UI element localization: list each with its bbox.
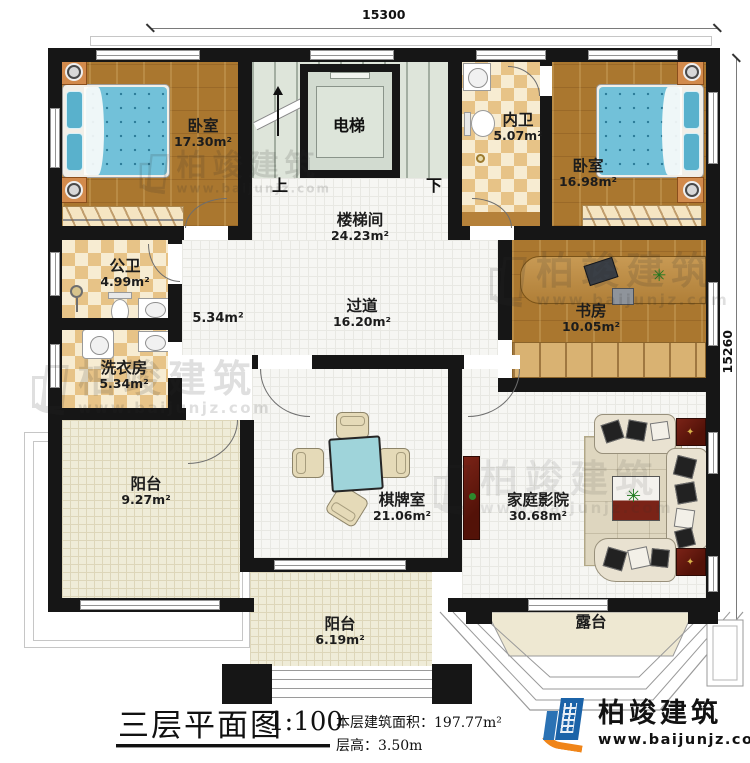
room-label-public-bath: 公卫 4.99m² [77, 258, 173, 289]
window [274, 560, 406, 570]
elevator-door-slot [330, 72, 370, 79]
window [50, 252, 60, 296]
dimension-right: 15260 [720, 330, 735, 374]
wall [48, 318, 182, 330]
door-opening [470, 226, 514, 240]
window [708, 556, 718, 592]
room-label-study: 书房 10.05m² [543, 303, 639, 334]
window [708, 92, 718, 164]
window [96, 50, 200, 60]
mahjong-table [328, 435, 384, 492]
side-table: ✦ [676, 418, 706, 446]
nightstand [60, 59, 87, 85]
balcony-railing [254, 666, 432, 698]
room-label-laundry: 洗衣房 5.34m² [76, 360, 172, 391]
washing-machine [82, 329, 114, 359]
bookshelf [512, 342, 706, 378]
stairs-down-label: 下 [426, 172, 442, 196]
door-opening [258, 355, 312, 369]
brand-website: www.baijunjz.com [598, 732, 750, 748]
hallway-area-label: 5.34m² [170, 312, 266, 327]
brand-logo: 柏竣建筑 www.baijunjz.com [540, 698, 750, 750]
floor-height-text: 层高：3.50m [336, 735, 422, 755]
window [588, 50, 678, 60]
door-opening [184, 226, 228, 240]
plant: ✳ [652, 266, 666, 286]
dimension-top: 15300 [362, 7, 406, 22]
room-label-home-theater: 家庭影院 30.68m² [490, 492, 586, 523]
wall [498, 378, 720, 392]
sofa [666, 448, 708, 550]
room-label-stair-hall: 楼梯间 24.23m² [312, 212, 408, 243]
floor-drain [476, 154, 485, 163]
wall [688, 598, 718, 624]
room-label-corridor: 过道 16.20m² [314, 298, 410, 329]
stair-direction-arrow [277, 92, 279, 136]
bed-sheet [662, 87, 682, 175]
dimension-line-right [736, 58, 737, 658]
stairs-up-label: 上 [272, 172, 288, 196]
top-sill-line [90, 36, 712, 46]
chair [292, 448, 324, 478]
room-label-terrace: 露台 [543, 614, 639, 631]
brand-logo-icon [540, 698, 592, 750]
dimension-line-top [150, 28, 718, 29]
wall [222, 664, 272, 704]
room-label-chess-room: 棋牌室 21.06m² [354, 492, 450, 523]
window [310, 50, 394, 60]
sink [138, 331, 170, 352]
wall [448, 368, 462, 572]
window [50, 108, 60, 168]
elevator-label: 电梯 [333, 112, 365, 136]
window [50, 344, 60, 388]
floor-area-text: 本层建筑面积：197.77m² [336, 712, 502, 732]
window [708, 282, 718, 346]
room-label-bedroom-right: 卧室 16.98m² [540, 158, 636, 189]
room-label-balcony-bottom: 阳台 6.19m² [292, 616, 388, 647]
wall [448, 48, 462, 240]
room-label-inner-bath: 内卫 5.07m² [470, 112, 566, 143]
sofa [594, 414, 676, 454]
door-opening [186, 408, 240, 420]
shower-stem [76, 298, 78, 312]
pillow [683, 91, 700, 129]
plan-scale: 1:100 [268, 707, 343, 737]
pillow [66, 133, 83, 171]
sink [138, 298, 170, 319]
terrace-door [528, 599, 608, 611]
door-opening [540, 66, 552, 96]
brand-name: 柏竣建筑 [598, 698, 722, 729]
pillow [683, 133, 700, 171]
title-underline [116, 744, 330, 748]
window [476, 50, 546, 60]
nightstand [60, 177, 87, 203]
tv-cabinet [463, 456, 480, 540]
sofa-chaise [594, 538, 676, 582]
toilet-tank [108, 292, 132, 299]
wall [240, 420, 254, 572]
plant: ✳ [626, 486, 641, 507]
wall [466, 598, 492, 624]
chair [336, 412, 369, 439]
bed-sheet [84, 87, 104, 175]
floor-plan: 15300 15260 [0, 0, 750, 763]
nightstand [677, 59, 704, 85]
room-label-balcony-left: 阳台 9.27m² [98, 476, 194, 507]
stair-arrowhead-icon [273, 86, 283, 95]
nightstand [677, 177, 704, 203]
sink [463, 63, 491, 91]
plan-title: 三层平面图 [118, 700, 283, 745]
window [708, 432, 718, 474]
wall [432, 664, 472, 704]
side-table: ✦ [676, 548, 706, 576]
room-label-bedroom-left: 卧室 17.30m² [155, 118, 251, 149]
balcony-railing-window [80, 600, 220, 610]
pillow [66, 91, 83, 129]
